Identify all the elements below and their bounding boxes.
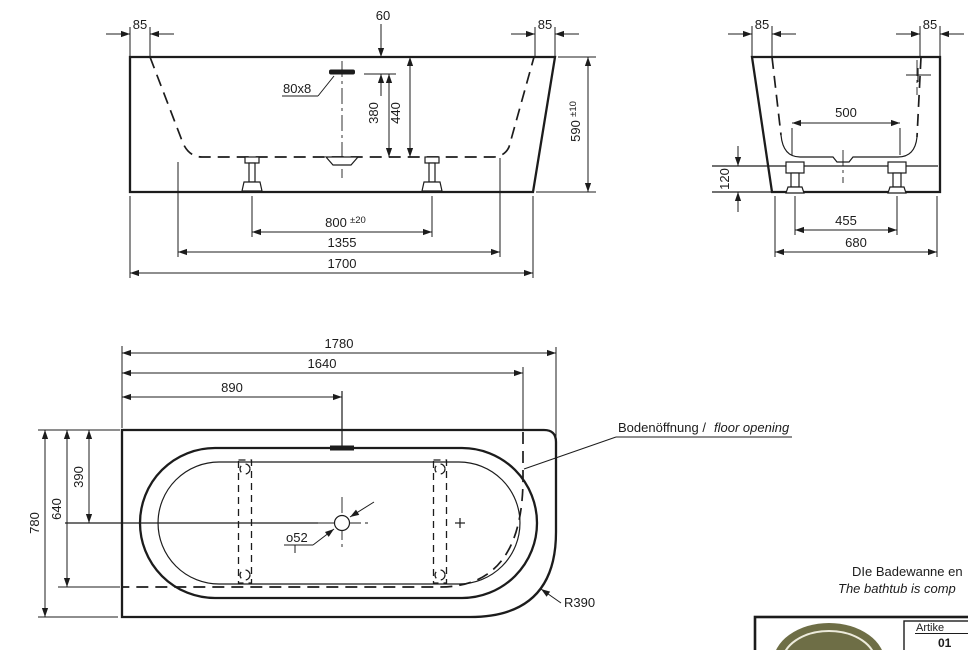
dim-label: 120 bbox=[717, 168, 732, 190]
dim-drain-from-back: 390 bbox=[71, 430, 89, 523]
dim-top-overall-length: 1780 bbox=[122, 336, 556, 440]
article-number: 01 bbox=[938, 636, 952, 650]
dim-label: 780 bbox=[27, 512, 42, 534]
dim-label: 85 bbox=[923, 17, 937, 32]
note-line-en: The bathtub is comp bbox=[838, 581, 956, 596]
bathtub-drawing: 85 85 60 380 440 80x8 bbox=[0, 0, 968, 650]
dim-label: 640 bbox=[49, 498, 64, 520]
dim-length-to-opening: 1640 bbox=[122, 356, 523, 430]
dim-side-offset-right: 85 bbox=[896, 17, 964, 57]
note-line-de: DIe Badewanne en bbox=[852, 564, 963, 579]
dim-drain-from-left: 890 bbox=[122, 380, 342, 397]
dim-label: 800 bbox=[325, 215, 347, 230]
dim-label: 85 bbox=[755, 17, 769, 32]
overflow-slot bbox=[329, 70, 355, 75]
dim-label: 500 bbox=[835, 105, 857, 120]
dim-feet-spacing: 800 ±20 bbox=[252, 196, 432, 237]
top-view: o52 R390 Bodenöffnung / floor opening 17… bbox=[27, 336, 792, 617]
drain-label: o52 bbox=[286, 530, 308, 545]
dim-label: 1640 bbox=[308, 356, 337, 371]
dim-label: 60 bbox=[376, 8, 390, 23]
side-view: 85 85 500 120 455 bbox=[712, 17, 964, 257]
dim-label: 85 bbox=[538, 17, 552, 32]
dim-label: 590 bbox=[568, 120, 583, 142]
floor-opening-label-en: floor opening bbox=[714, 420, 790, 435]
dim-front-offset-right: 85 bbox=[511, 17, 579, 57]
dim-label: 1700 bbox=[328, 256, 357, 271]
dim-label: 680 bbox=[845, 235, 867, 250]
dim-tolerance: ±20 bbox=[350, 215, 366, 226]
floor-opening-label-de: Bodenöffnung / bbox=[618, 420, 706, 435]
dim-tolerance: ±10 bbox=[568, 101, 579, 117]
notes: DIe Badewanne en The bathtub is comp bbox=[838, 564, 963, 596]
dim-label: 390 bbox=[71, 466, 86, 488]
dim-foot-height: 120 bbox=[717, 146, 738, 212]
radius-callout: R390 bbox=[541, 589, 595, 610]
dim-opening-from-back: 640 bbox=[49, 430, 67, 587]
technical-drawing-sheet: 85 85 60 380 440 80x8 bbox=[0, 0, 968, 650]
dim-label: 890 bbox=[221, 380, 243, 395]
dim-label: 85 bbox=[133, 17, 147, 32]
dim-label: 380 bbox=[366, 102, 381, 124]
radius-label: R390 bbox=[564, 595, 595, 610]
dim-label: 455 bbox=[835, 213, 857, 228]
slot-label: 80x8 bbox=[283, 81, 311, 96]
front-view: 85 85 60 380 440 80x8 bbox=[106, 8, 596, 278]
dim-label: 440 bbox=[388, 102, 403, 124]
dim-label: 1355 bbox=[328, 235, 357, 250]
front-outline bbox=[130, 57, 555, 192]
dim-side-offset-left: 85 bbox=[728, 17, 796, 57]
title-block: Artike 01 bbox=[755, 617, 968, 650]
article-field-label: Artike bbox=[916, 622, 944, 634]
dim-front-offset-left: 85 bbox=[106, 17, 174, 57]
dim-side-feet-spacing: 455 bbox=[795, 196, 897, 235]
dim-top-overall-width: 780 bbox=[27, 430, 45, 617]
floor-opening-callout: Bodenöffnung / floor opening bbox=[524, 420, 792, 469]
dim-label: 1780 bbox=[325, 336, 354, 351]
